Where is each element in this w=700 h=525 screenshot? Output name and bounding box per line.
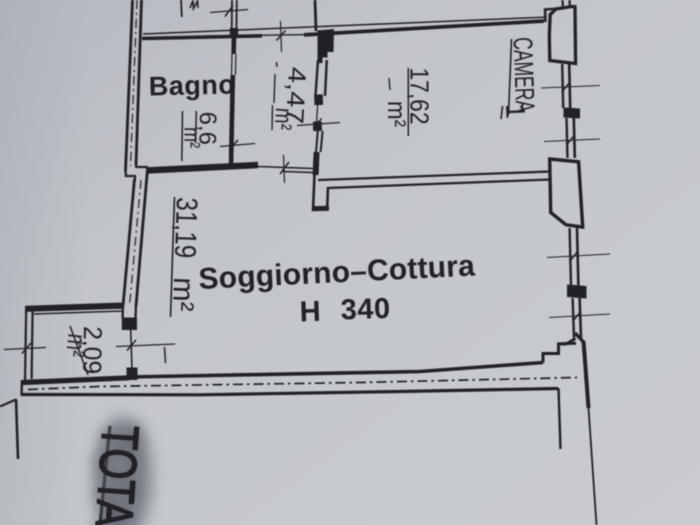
svg-text:Bagno: Bagno xyxy=(148,70,235,102)
svg-text:1: 1 xyxy=(500,103,531,119)
svg-text:340: 340 xyxy=(340,293,391,327)
svg-text:m²: m² xyxy=(382,101,412,127)
svg-text:CAMERA: CAMERA xyxy=(508,37,541,113)
svg-text:TOTALE: TOTALE xyxy=(81,423,149,525)
svg-text:H: H xyxy=(299,296,321,329)
svg-text:m²: m² xyxy=(60,332,92,358)
svg-text:m²: m² xyxy=(179,127,205,149)
